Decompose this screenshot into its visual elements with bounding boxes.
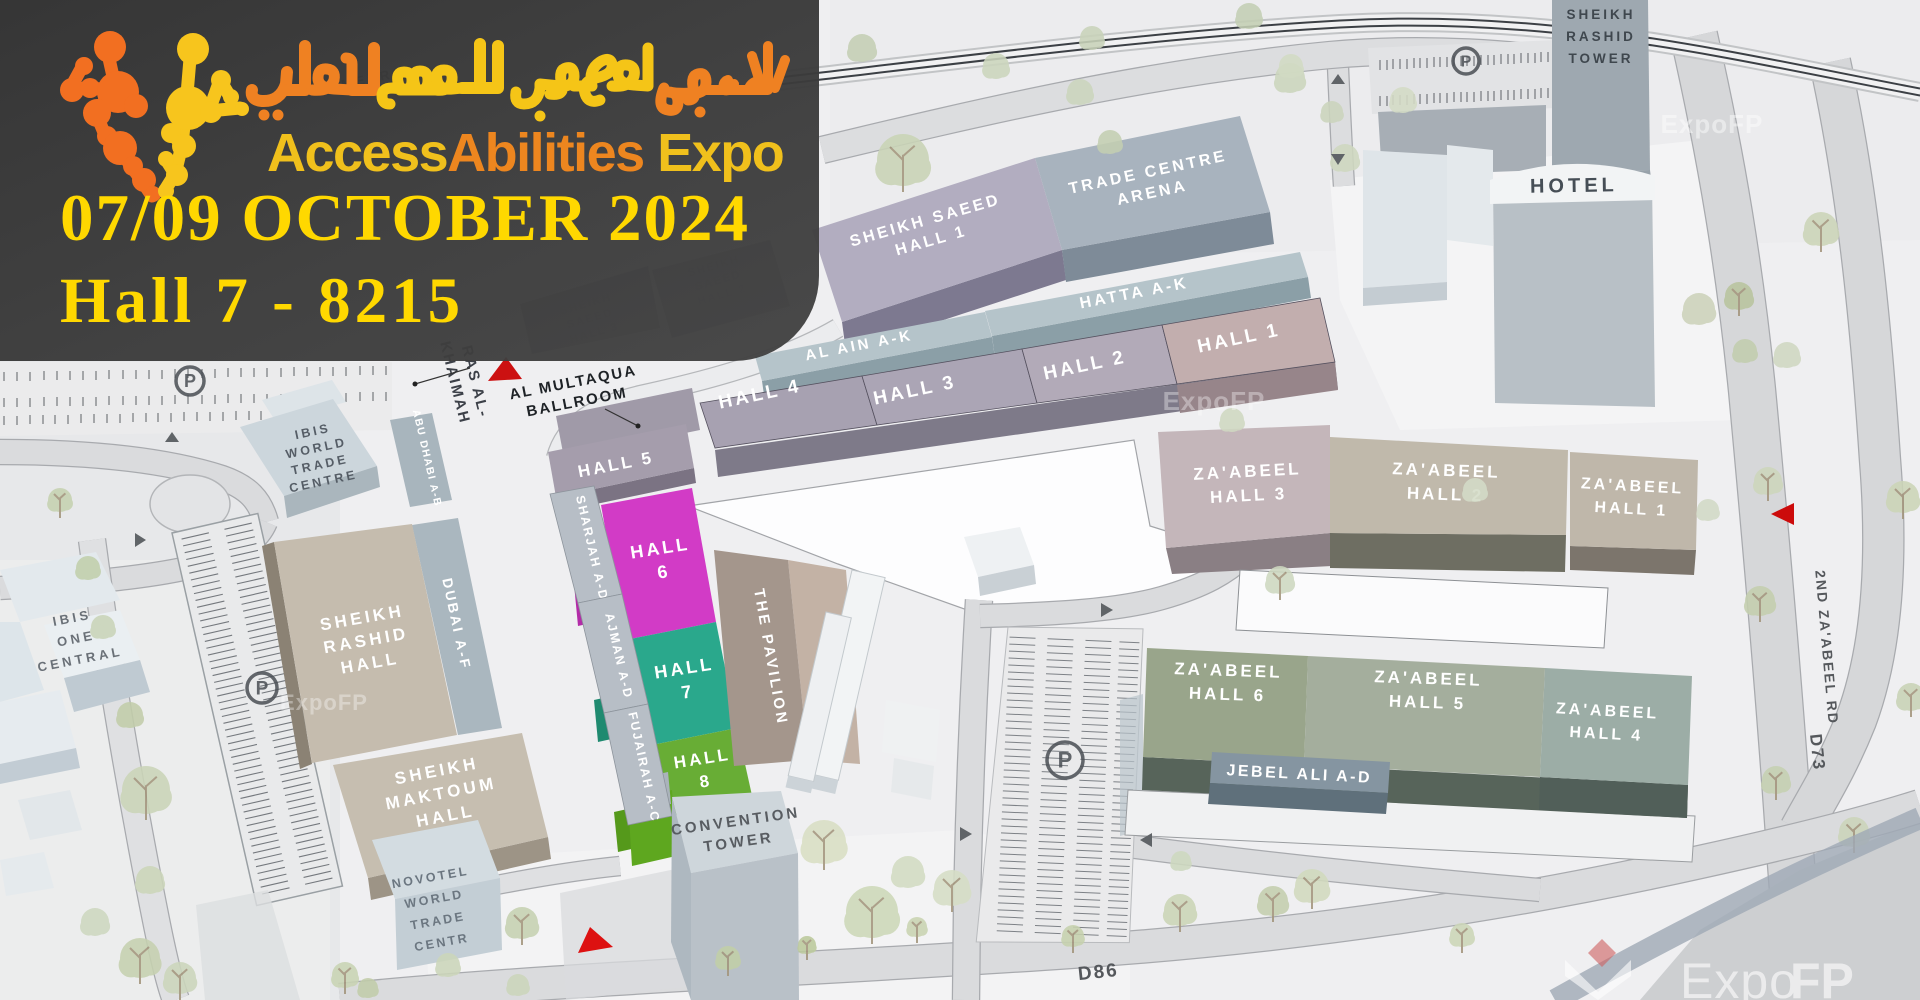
svg-text:HOTEL: HOTEL: [1530, 174, 1618, 198]
svg-text:ExpoFP: ExpoFP: [280, 690, 368, 715]
svg-text:P: P: [256, 678, 269, 699]
svg-text:P: P: [1058, 748, 1073, 773]
svg-text:D86: D86: [1077, 960, 1120, 985]
svg-text:ZA'ABEEL: ZA'ABEEL: [1174, 659, 1283, 682]
svg-text:FP: FP: [1790, 953, 1854, 1000]
svg-text:ExpoFP: ExpoFP: [1163, 386, 1266, 416]
svg-text:Hall 7 - 8215: Hall 7 - 8215: [60, 265, 464, 337]
svg-text:HALL 3: HALL 3: [1210, 484, 1288, 507]
svg-text:P: P: [184, 371, 196, 391]
svg-text:ExpoFP: ExpoFP: [1661, 109, 1764, 139]
svg-text:ZA'ABEEL: ZA'ABEEL: [1392, 459, 1501, 482]
svg-text:HALL 5: HALL 5: [1389, 692, 1467, 714]
svg-text:HALL 6: HALL 6: [1189, 684, 1267, 706]
svg-text:TOWER: TOWER: [1569, 51, 1634, 66]
svg-text:SHEIKH: SHEIKH: [1566, 7, 1635, 22]
svg-text:P: P: [1461, 53, 1472, 70]
svg-text:07/09 OCTOBER 2024: 07/09 OCTOBER 2024: [60, 181, 750, 255]
svg-text:RASHID: RASHID: [1566, 29, 1636, 44]
svg-text:ZA'ABEEL: ZA'ABEEL: [1374, 667, 1483, 690]
svg-text:Expo: Expo: [1680, 953, 1798, 1000]
svg-text:D73: D73: [1806, 733, 1829, 772]
svg-text:AccessAbilities Expo: AccessAbilities Expo: [267, 123, 783, 183]
